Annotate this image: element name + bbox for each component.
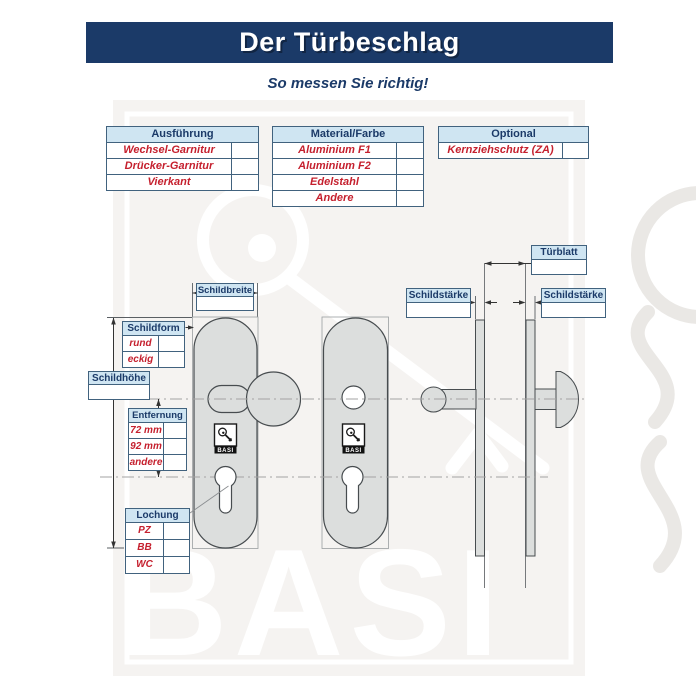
page: BASI — [0, 0, 696, 696]
checkbox-vierkant[interactable] — [231, 175, 258, 190]
table-row: Aluminium F1 — [273, 143, 423, 159]
ausfuehrung-header: Ausführung — [107, 127, 258, 143]
ausfuehrung-table: Ausführung Wechsel-Garnitur Drücker-Garn… — [106, 126, 259, 191]
plate-side-right — [526, 320, 535, 556]
table-row: Vierkant — [107, 175, 258, 190]
table-row: Kernziehschutz (ZA) — [439, 143, 588, 158]
schildhoehe-label: Schildhöhe — [88, 371, 150, 400]
schildform-table: Schildform rund eckig — [122, 321, 185, 368]
table-row: rund — [123, 336, 184, 352]
checkbox-aluminium-f1[interactable] — [396, 143, 423, 158]
tuerblatt-value-box[interactable] — [531, 260, 587, 275]
checkbox-72mm[interactable] — [163, 423, 186, 438]
basi-badge-left: BASI — [215, 424, 237, 454]
checkbox-rund[interactable] — [158, 336, 184, 351]
table-row: Edelstahl — [273, 175, 423, 191]
checkbox-andere[interactable] — [396, 191, 423, 206]
technical-drawing: BASI BASI — [0, 0, 696, 696]
title-banner: Der Türbeschlag — [86, 22, 613, 63]
schildform-arrow — [188, 325, 194, 329]
row-label-pz: PZ — [126, 523, 163, 539]
plate-side-left — [476, 320, 485, 556]
basi-badge-text: BASI — [217, 448, 233, 454]
lochung-table: Lochung PZ BB WC — [125, 508, 190, 574]
row-label-wc: WC — [126, 557, 163, 573]
checkbox-edelstahl[interactable] — [396, 175, 423, 190]
checkbox-bb[interactable] — [163, 540, 189, 556]
row-label-72mm: 72 mm — [129, 423, 163, 438]
checkbox-wc[interactable] — [163, 557, 189, 573]
table-row: Drücker-Garnitur — [107, 159, 258, 175]
material-farbe-header: Material/Farbe — [273, 127, 423, 143]
table-row: eckig — [123, 352, 184, 367]
table-row: PZ — [126, 523, 189, 540]
optional-table: Optional Kernziehschutz (ZA) — [438, 126, 589, 159]
schildbreite-label: Schildbreite — [196, 283, 254, 311]
basi-badge-middle: BASI — [343, 424, 365, 454]
checkbox-kernziehschutz[interactable] — [562, 143, 588, 158]
table-row: Wechsel-Garnitur — [107, 143, 258, 159]
schildform-header: Schildform — [123, 322, 184, 336]
table-row: BB — [126, 540, 189, 557]
checkbox-92mm[interactable] — [163, 439, 186, 454]
schildstaerke-right-label: Schildstärke — [541, 288, 606, 318]
checkbox-pz[interactable] — [163, 523, 189, 539]
tuerblatt-title: Türblatt — [531, 245, 587, 260]
material-farbe-table: Material/Farbe Aluminium F1 Aluminium F2… — [272, 126, 424, 207]
row-label-edelstahl: Edelstahl — [273, 175, 396, 190]
table-row: WC — [126, 557, 189, 573]
checkbox-druecker-garnitur[interactable] — [231, 159, 258, 174]
page-title: Der Türbeschlag — [239, 27, 460, 58]
row-label-aluminium-f2: Aluminium F2 — [273, 159, 396, 174]
basi-badge-text: BASI — [345, 448, 361, 454]
checkbox-andere-entfernung[interactable] — [163, 455, 186, 470]
tuerblatt-label: Türblatt — [531, 245, 587, 275]
optional-header: Optional — [439, 127, 588, 143]
entfernung-header: Entfernung — [129, 409, 186, 423]
row-label-andere-entfernung: andere — [129, 455, 163, 470]
schildstaerke-left-value-box[interactable] — [406, 303, 471, 318]
schildbreite-value-box[interactable] — [196, 297, 254, 311]
entfernung-table: Entfernung 72 mm 92 mm andere — [128, 408, 187, 471]
page-subtitle: So messen Sie richtig! — [0, 75, 696, 92]
spindle-hole — [342, 386, 365, 409]
table-row: Aluminium F2 — [273, 159, 423, 175]
left-plate-front-view — [194, 318, 301, 548]
row-label-92mm: 92 mm — [129, 439, 163, 454]
door-knob — [247, 372, 301, 426]
table-row: Andere — [273, 191, 423, 206]
table-row: andere — [129, 455, 186, 470]
schildstaerke-right-value-box[interactable] — [541, 303, 606, 318]
row-label-wechsel-garnitur: Wechsel-Garnitur — [107, 143, 231, 158]
schildstaerke-left-label: Schildstärke — [406, 288, 471, 318]
lochung-header: Lochung — [126, 509, 189, 523]
row-label-andere: Andere — [273, 191, 396, 206]
checkbox-eckig[interactable] — [158, 352, 184, 367]
row-label-eckig: eckig — [123, 352, 158, 367]
checkbox-aluminium-f2[interactable] — [396, 159, 423, 174]
table-row: 72 mm — [129, 423, 186, 439]
schildstaerke-right-title: Schildstärke — [541, 288, 606, 303]
row-label-vierkant: Vierkant — [107, 175, 231, 190]
row-label-aluminium-f1: Aluminium F1 — [273, 143, 396, 158]
schildbreite-title: Schildbreite — [196, 283, 254, 297]
table-row: 92 mm — [129, 439, 186, 455]
schildhoehe-title: Schildhöhe — [88, 371, 150, 385]
schildstaerke-left-title: Schildstärke — [406, 288, 471, 303]
checkbox-wechsel-garnitur[interactable] — [231, 143, 258, 158]
row-label-rund: rund — [123, 336, 158, 351]
row-label-bb: BB — [126, 540, 163, 556]
row-label-druecker-garnitur: Drücker-Garnitur — [107, 159, 231, 174]
schildhoehe-value-box[interactable] — [88, 385, 150, 400]
row-label-kernziehschutz: Kernziehschutz (ZA) — [439, 143, 562, 158]
